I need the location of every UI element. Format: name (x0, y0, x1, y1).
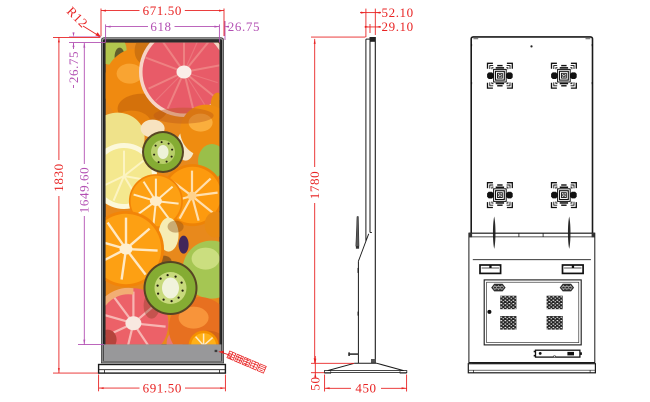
svg-text:26.75: 26.75 (66, 51, 81, 83)
svg-text:50: 50 (308, 376, 323, 390)
svg-text:52.10: 52.10 (382, 5, 414, 20)
svg-text:R12: R12 (64, 4, 91, 31)
svg-text:691.50: 691.50 (143, 380, 182, 395)
svg-text:1780: 1780 (307, 171, 322, 199)
svg-text:26.75: 26.75 (228, 19, 260, 34)
svg-text:1830: 1830 (51, 163, 66, 191)
svg-text:1649.60: 1649.60 (77, 167, 92, 213)
svg-text:671.50: 671.50 (143, 3, 182, 18)
svg-text:450: 450 (355, 381, 376, 396)
svg-text:618: 618 (150, 19, 171, 34)
svg-text:29.10: 29.10 (382, 19, 414, 34)
